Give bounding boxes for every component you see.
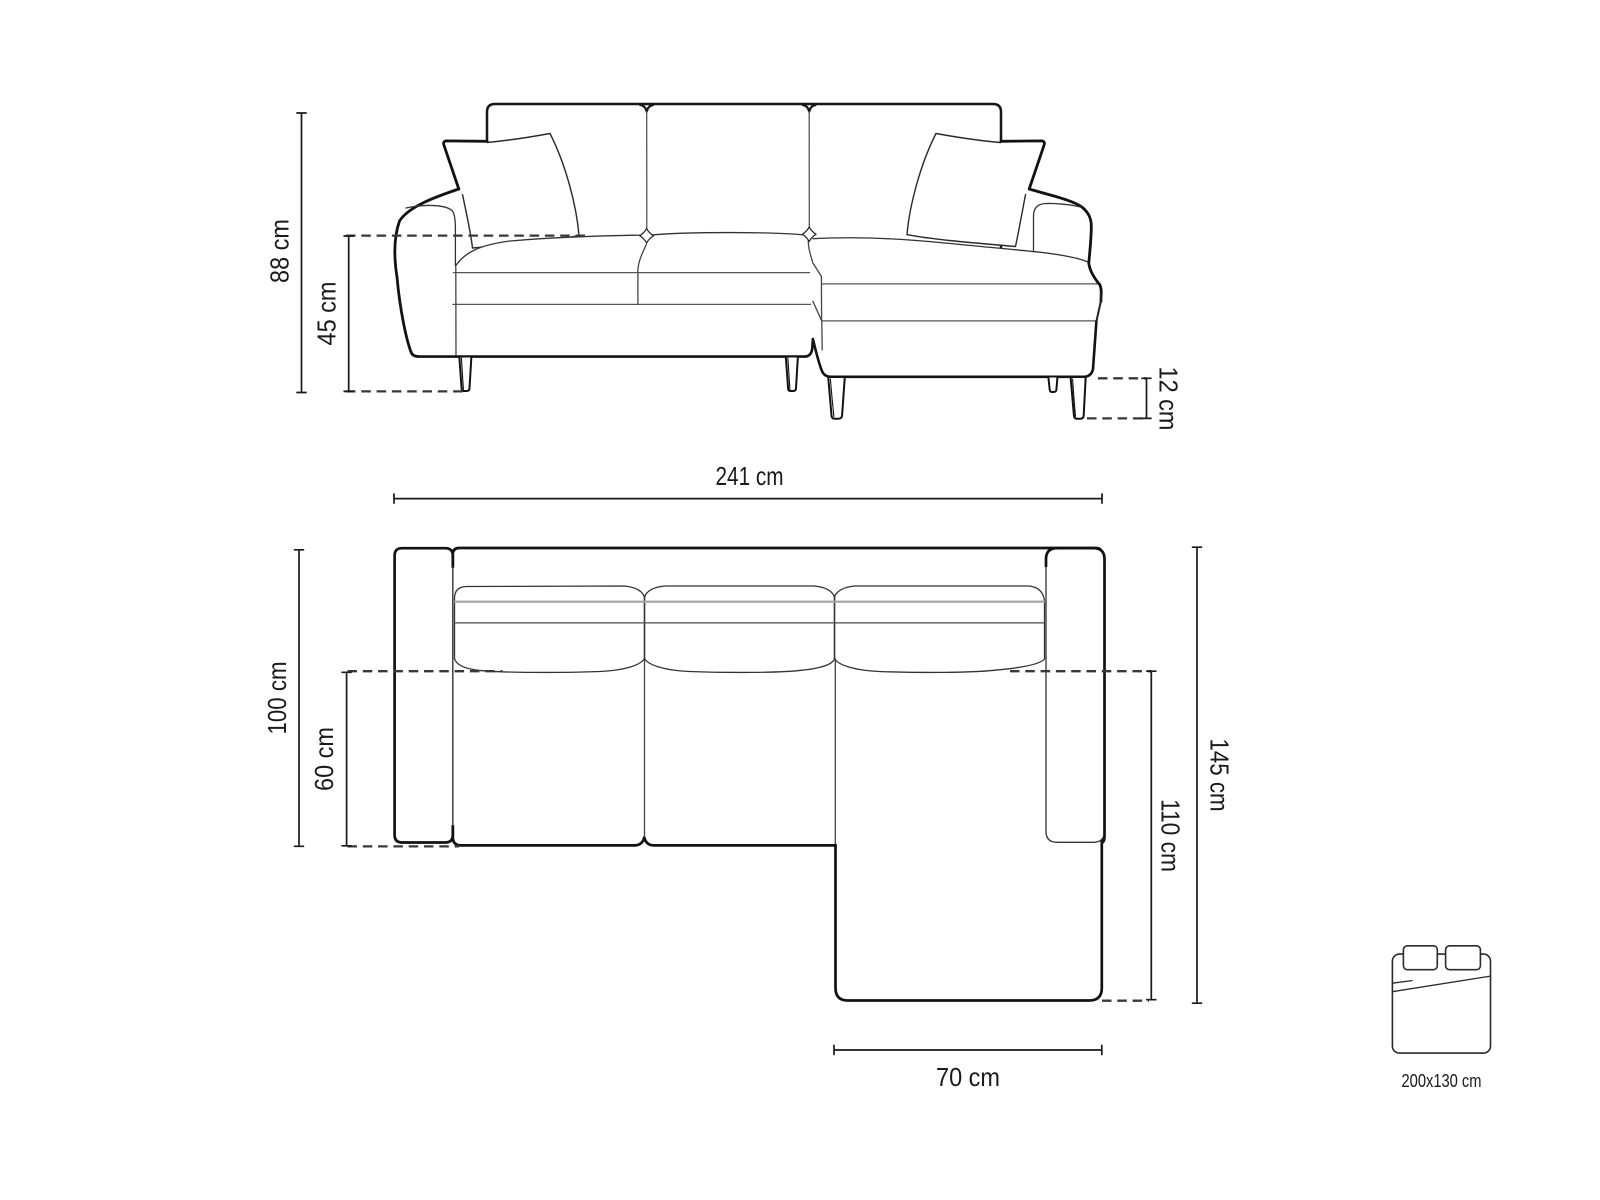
- svg-text:110 cm: 110 cm: [1156, 799, 1186, 872]
- svg-text:145 cm: 145 cm: [1205, 739, 1235, 812]
- svg-text:88 cm: 88 cm: [265, 219, 295, 283]
- svg-text:60 cm: 60 cm: [309, 727, 339, 791]
- svg-text:12 cm: 12 cm: [1154, 367, 1184, 431]
- svg-text:241 cm: 241 cm: [716, 461, 784, 491]
- svg-text:200x130 cm: 200x130 cm: [1402, 1070, 1482, 1091]
- svg-text:100 cm: 100 cm: [262, 662, 292, 735]
- svg-text:45 cm: 45 cm: [312, 282, 342, 346]
- svg-text:70 cm: 70 cm: [936, 1062, 1000, 1092]
